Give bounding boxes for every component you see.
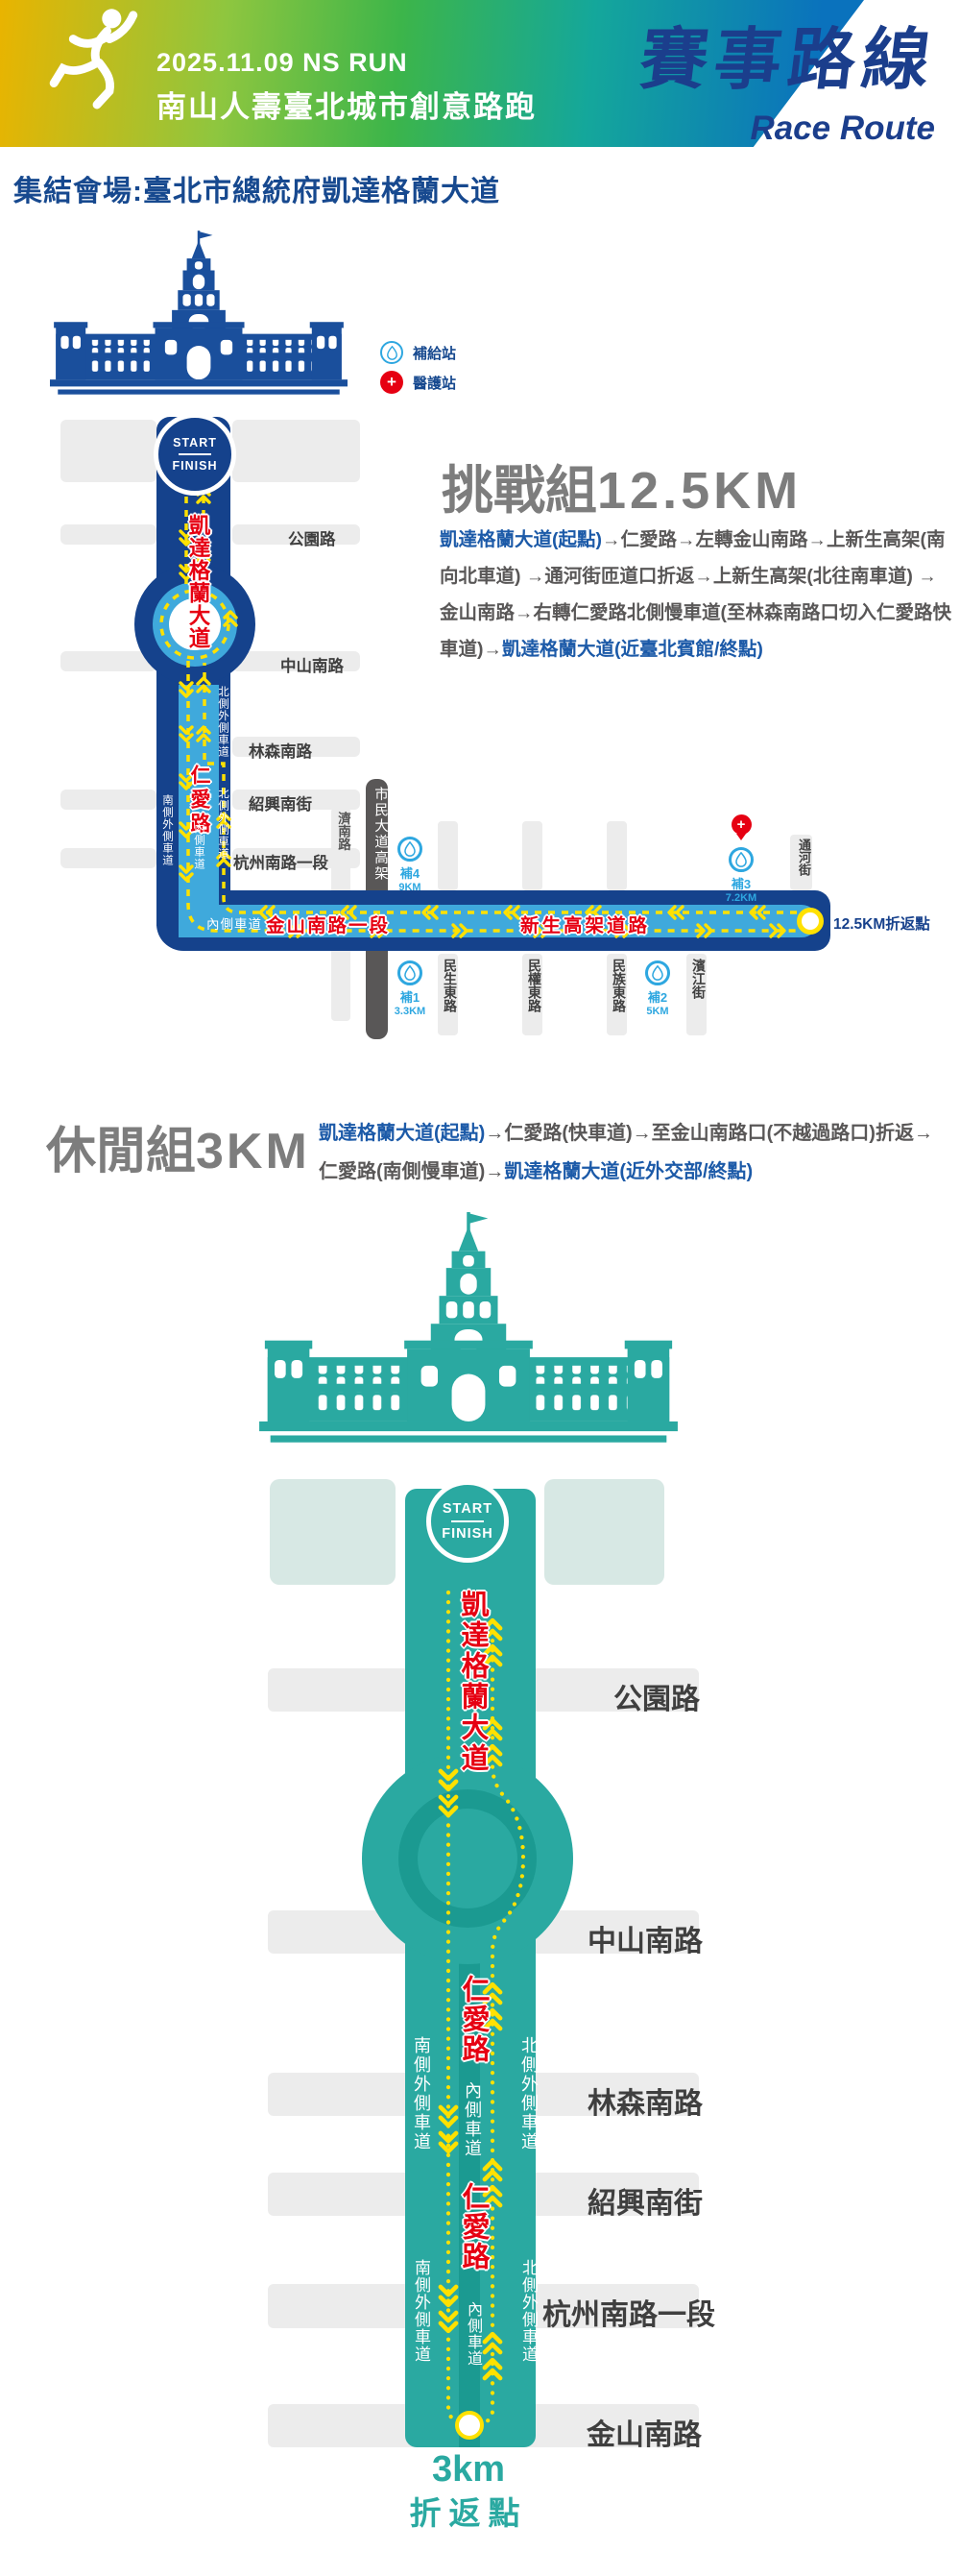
presidential-office-illustration-blue — [50, 231, 348, 400]
street-label-shaoxing: 紹興南街 — [249, 791, 312, 814]
street-label-gongyuan-3k: 公園路 — [613, 1675, 700, 1717]
page-subtitle: Race Route — [750, 109, 935, 148]
renai-road-label-3k: 仁愛路 — [453, 2182, 493, 2272]
cross-label-binjiang: 濱江街 — [689, 959, 708, 999]
start-label: START — [443, 1501, 492, 1517]
medical-station-pin: + — [731, 814, 752, 840]
street-label-jinshan-3k: 金山南路 — [587, 2411, 702, 2453]
event-name: 南山人壽臺北城市創意路跑 — [156, 83, 537, 126]
turnaround-label-12-5km: 12.5KM折返點 — [833, 912, 930, 934]
lane-north-outer-label-3k: 北側外側車道 — [516, 2259, 540, 2363]
challenge-distance-label: 12.5KM — [597, 462, 802, 520]
lane-south-outer-label-3k: 南側外側車道 — [409, 2259, 433, 2363]
cross-bar-above — [607, 821, 627, 890]
legend-medical: + 醫護站 — [380, 371, 456, 394]
turnaround-3km-line1: 3km — [392, 2449, 545, 2491]
challenge-route-end: 凱達格蘭大道(近臺北賓館/終點) — [502, 639, 763, 660]
leisure-title: 休閒組3KM — [46, 1110, 310, 1182]
turnaround-point-3km — [455, 2411, 484, 2440]
event-date: 2025.11.09 NS RUN — [156, 48, 408, 78]
roundabout-center-3k — [418, 1809, 517, 1908]
street-label-hangzhou-3k: 杭州南路一段 — [542, 2291, 715, 2333]
challenge-title: 挑戰組12.5KM — [442, 448, 802, 523]
start-finish-marker-leisure: START FINISH — [426, 1480, 509, 1563]
street-label-zhongshan: 中山南路 — [280, 653, 344, 676]
city-block-teal — [544, 1479, 664, 1585]
jinshan-road-label: 金山南路一段 — [266, 910, 390, 937]
street-bar-shaoxing-left — [60, 790, 156, 810]
presidential-office-illustration-teal — [259, 1212, 678, 1449]
legend-supply: 補給站 — [380, 341, 456, 364]
jinan-road-label: 濟南路 — [333, 812, 352, 851]
city-block-teal — [270, 1479, 396, 1585]
renai-road-label-3k: 仁愛路 — [453, 1975, 493, 2064]
station-distance: 7.2KM — [714, 892, 768, 904]
legend-supply-label: 補給站 — [413, 343, 456, 363]
supply-station-icon — [397, 837, 422, 862]
station-distance: 3.3KM — [383, 1006, 437, 1017]
race-route-poster: 2025.11.09 NS RUN 南山人壽臺北城市創意路跑 賽事路線 Race… — [0, 0, 960, 2576]
lane-inner-label-3k: 內側車道 — [460, 2081, 485, 2158]
leisure-group-label: 休閒組 — [46, 1124, 196, 1179]
pin-pointer — [736, 834, 746, 840]
lane-inner-horizontal-label: 內側車道 — [206, 913, 262, 933]
supply-station-icon — [645, 960, 670, 985]
supply-station-icon — [729, 847, 754, 872]
supply-station-1: 補1 3.3KM — [383, 960, 437, 1017]
supply-station-4: 補4 9KM — [383, 837, 437, 893]
start-finish-marker-challenge: START FINISH — [154, 413, 236, 496]
turnaround-point-12-5km — [797, 908, 824, 935]
lane-north-outer-label: 北側外側車道 — [215, 686, 230, 758]
leisure-route-description: 凱達格蘭大道(起點)→仁愛路(快車道)→至金山南路口(不越過路口)折返→仁愛路(… — [319, 1114, 950, 1191]
leisure-route-start: 凱達格蘭大道(起點) — [319, 1123, 485, 1144]
station-name: 補3 — [714, 874, 768, 892]
lane-inner-label-3k: 內側車道 — [461, 2301, 484, 2367]
tonghe-street-label: 通河街 — [795, 838, 813, 876]
cross-label-minsheng: 民生東路 — [441, 959, 460, 1012]
page-title: 賽事路線 — [636, 6, 943, 103]
street-label-linsen-3k: 林森南路 — [588, 2079, 703, 2122]
xinsheng-road-label: 新生高架道路 — [520, 910, 650, 937]
street-label-gongyuan: 公園路 — [288, 526, 336, 549]
medical-station-icon: + — [380, 371, 403, 394]
station-name: 補2 — [631, 987, 684, 1006]
finish-label: FINISH — [173, 459, 218, 473]
lane-inner-label: 內側車道 — [191, 822, 206, 870]
kaidagelan-road-label: 凱達格蘭大道 — [182, 514, 213, 649]
city-block — [60, 420, 156, 482]
station-distance: 9KM — [383, 882, 437, 893]
street-label-zhongshan-3k: 中山南路 — [588, 1917, 703, 1959]
station-distance: 5KM — [631, 1006, 684, 1017]
street-bar-hangzhou-left — [60, 848, 156, 868]
street-label-linsen: 林森南路 — [249, 739, 312, 762]
station-name: 補1 — [383, 987, 437, 1006]
turnaround-3km-line2: 折返點 — [392, 2488, 545, 2534]
finish-label: FINISH — [442, 1526, 493, 1542]
start-finish-divider — [179, 453, 211, 455]
city-block — [232, 420, 360, 482]
lane-south-outer-label-3k: 南側外側車道 — [409, 2036, 434, 2151]
street-label-hangzhou: 杭州南路一段 — [233, 850, 328, 873]
kaidagelan-road-label-3k: 凱達格蘭大道 — [452, 1590, 492, 1774]
cross-label-minzu: 民族東路 — [610, 959, 629, 1012]
runner-icon — [40, 4, 154, 117]
start-finish-divider — [451, 1520, 484, 1522]
supply-station-icon — [380, 341, 403, 364]
legend-medical-label: 醫護站 — [413, 373, 456, 393]
street-label-shaoxing-3k: 紹興南街 — [588, 2179, 703, 2222]
supply-station-icon — [397, 960, 422, 985]
station-name: 補4 — [383, 863, 437, 882]
start-label: START — [173, 436, 217, 450]
cross-bar-above — [522, 821, 542, 890]
leisure-distance-label: 3KM — [196, 1124, 310, 1179]
challenge-route-start: 凱達格蘭大道(起點) — [440, 529, 602, 550]
supply-station-2: 補2 5KM — [631, 960, 684, 1017]
medical-cross-icon: + — [732, 814, 752, 835]
leisure-route-end: 凱達格蘭大道(近外交部/終點) — [504, 1161, 753, 1182]
cross-bar-above — [438, 821, 458, 890]
lane-south-outer-label: 南側外側車道 — [159, 794, 175, 866]
street-bar-gongyuan-left — [60, 524, 156, 545]
supply-station-3: 補3 7.2KM — [714, 847, 768, 904]
lane-north-outer-label-3k: 北側外側車道 — [516, 2036, 541, 2151]
assembly-venue: 集結會場:臺北市總統府凱達格蘭大道 — [13, 167, 500, 209]
challenge-group-label: 挑戰組 — [442, 462, 597, 520]
challenge-route-description: 凱達格蘭大道(起點)→仁愛路→左轉金山南路→上新生高架(南向北車道) →通河街匝… — [440, 522, 952, 668]
lane-north-outer-label: 北側外側車道 — [215, 788, 230, 860]
cross-label-minquan: 民權東路 — [525, 959, 544, 1012]
